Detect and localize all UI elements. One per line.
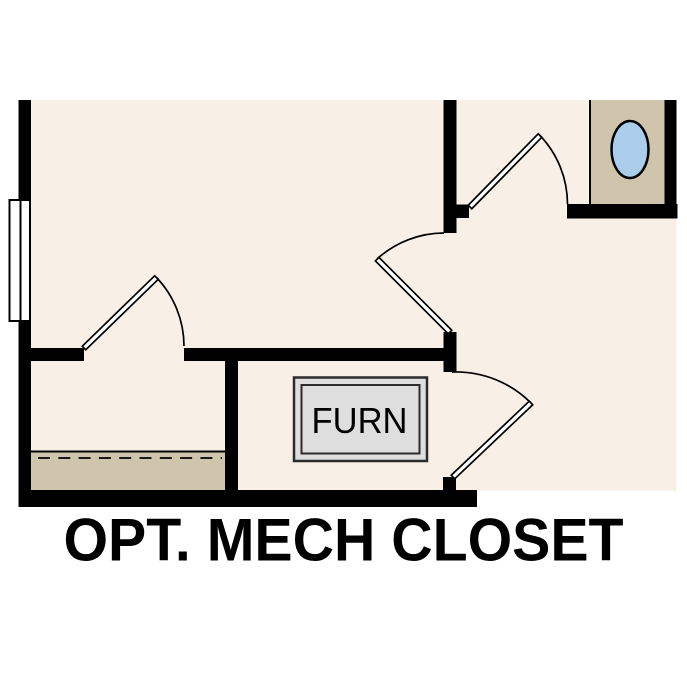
svg-text:OPT. MECH CLOSET: OPT. MECH CLOSET xyxy=(64,507,624,574)
svg-text:FURN: FURN xyxy=(312,400,408,441)
